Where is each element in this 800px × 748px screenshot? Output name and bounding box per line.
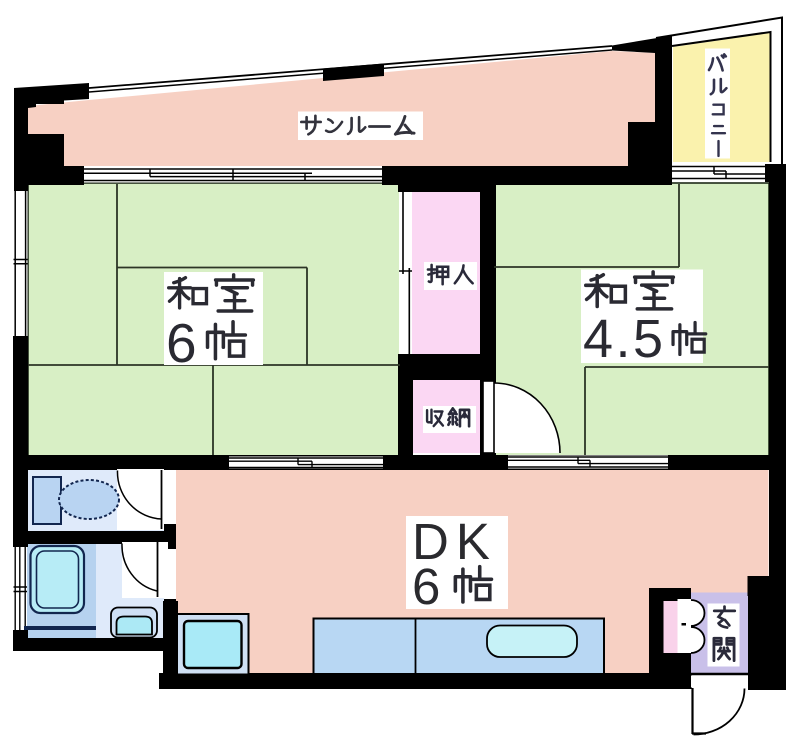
- svg-text:4.5: 4.5: [583, 309, 666, 369]
- svg-text:6: 6: [412, 558, 440, 615]
- svg-text:6: 6: [166, 312, 197, 374]
